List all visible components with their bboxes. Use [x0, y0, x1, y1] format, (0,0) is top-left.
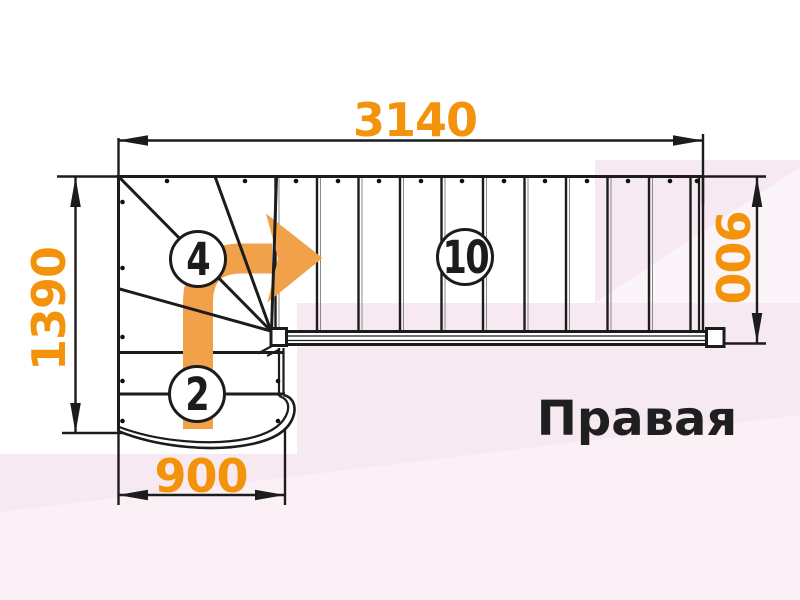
dimension-right: 900	[707, 182, 755, 332]
lower-flight-step-count: 2	[186, 372, 209, 417]
winder-step-count-badge: 4	[169, 230, 227, 288]
dimension-bottom: 900	[126, 453, 276, 499]
dimension-top: 3140	[340, 97, 490, 143]
upper-flight-step-count-badge: 10	[436, 228, 494, 286]
stair-plan-canvas: 4 2 10 3140 1390 900 900 Правая	[0, 0, 800, 600]
newel-post-left	[271, 329, 287, 346]
lower-flight-step-count-badge: 2	[168, 365, 226, 423]
plan-orientation-label: Правая	[517, 395, 757, 443]
stringer-rail	[271, 329, 724, 347]
winder-step-count: 4	[187, 237, 210, 282]
staircase-plan-drawing	[0, 0, 800, 600]
upper-flight-step-count: 10	[442, 235, 488, 280]
dimension-left: 1390	[26, 234, 74, 384]
